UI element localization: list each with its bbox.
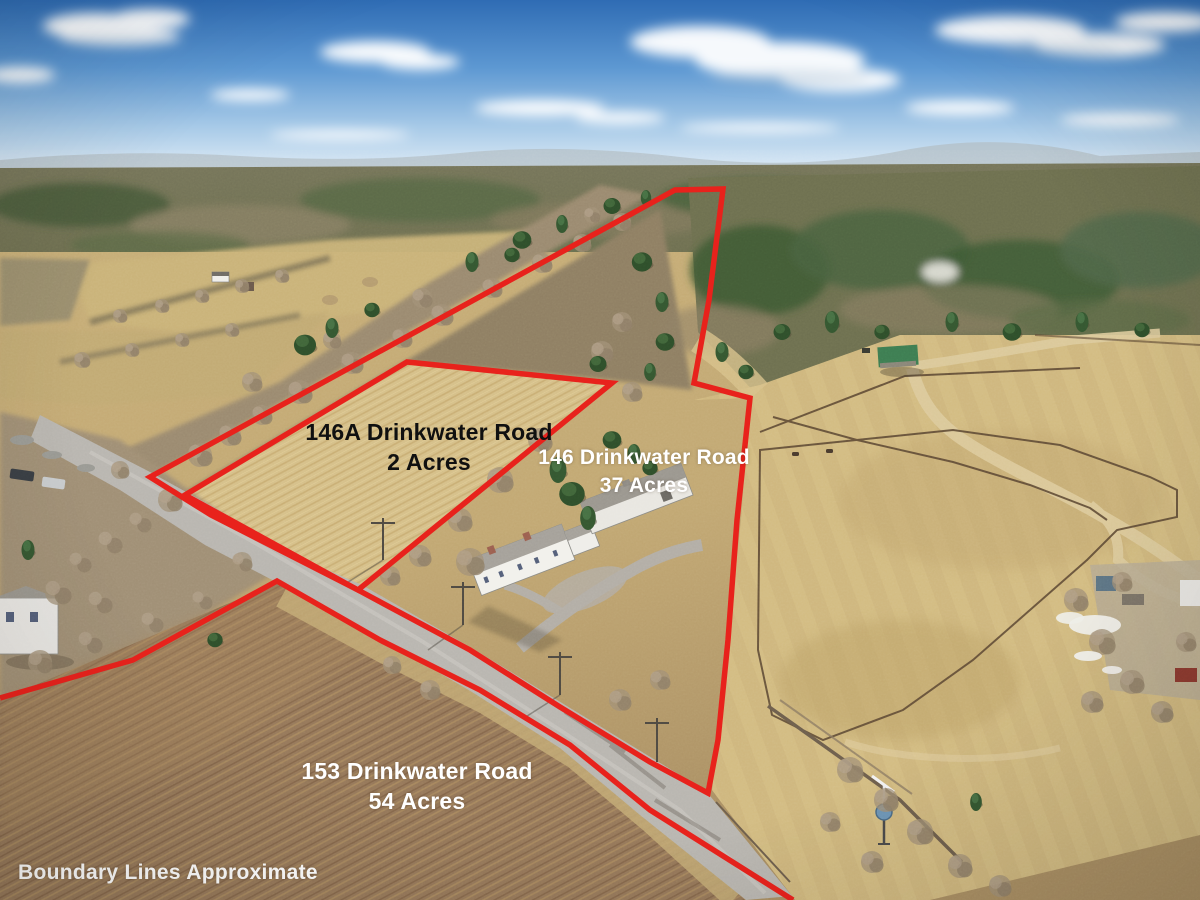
parcel-label-146: 146 Drinkwater Road 37 Acres [538,444,750,499]
parcel-address: 146 Drinkwater Road [538,444,750,472]
aerial-photo: 146A Drinkwater Road 2 Acres 146 Drinkwa… [0,0,1200,900]
parcel-label-146a: 146A Drinkwater Road 2 Acres [305,417,552,478]
parcel-acreage: 54 Acres [301,786,532,816]
parcel-address: 146A Drinkwater Road [305,417,552,447]
parcel-label-153: 153 Drinkwater Road 54 Acres [301,756,532,817]
parcel-acreage: 2 Acres [305,447,552,477]
parcel-acreage: 37 Acres [538,472,750,500]
photo-grain [0,150,1200,900]
disclaimer-text: Boundary Lines Approximate [18,861,318,885]
parcel-address: 153 Drinkwater Road [301,756,532,786]
